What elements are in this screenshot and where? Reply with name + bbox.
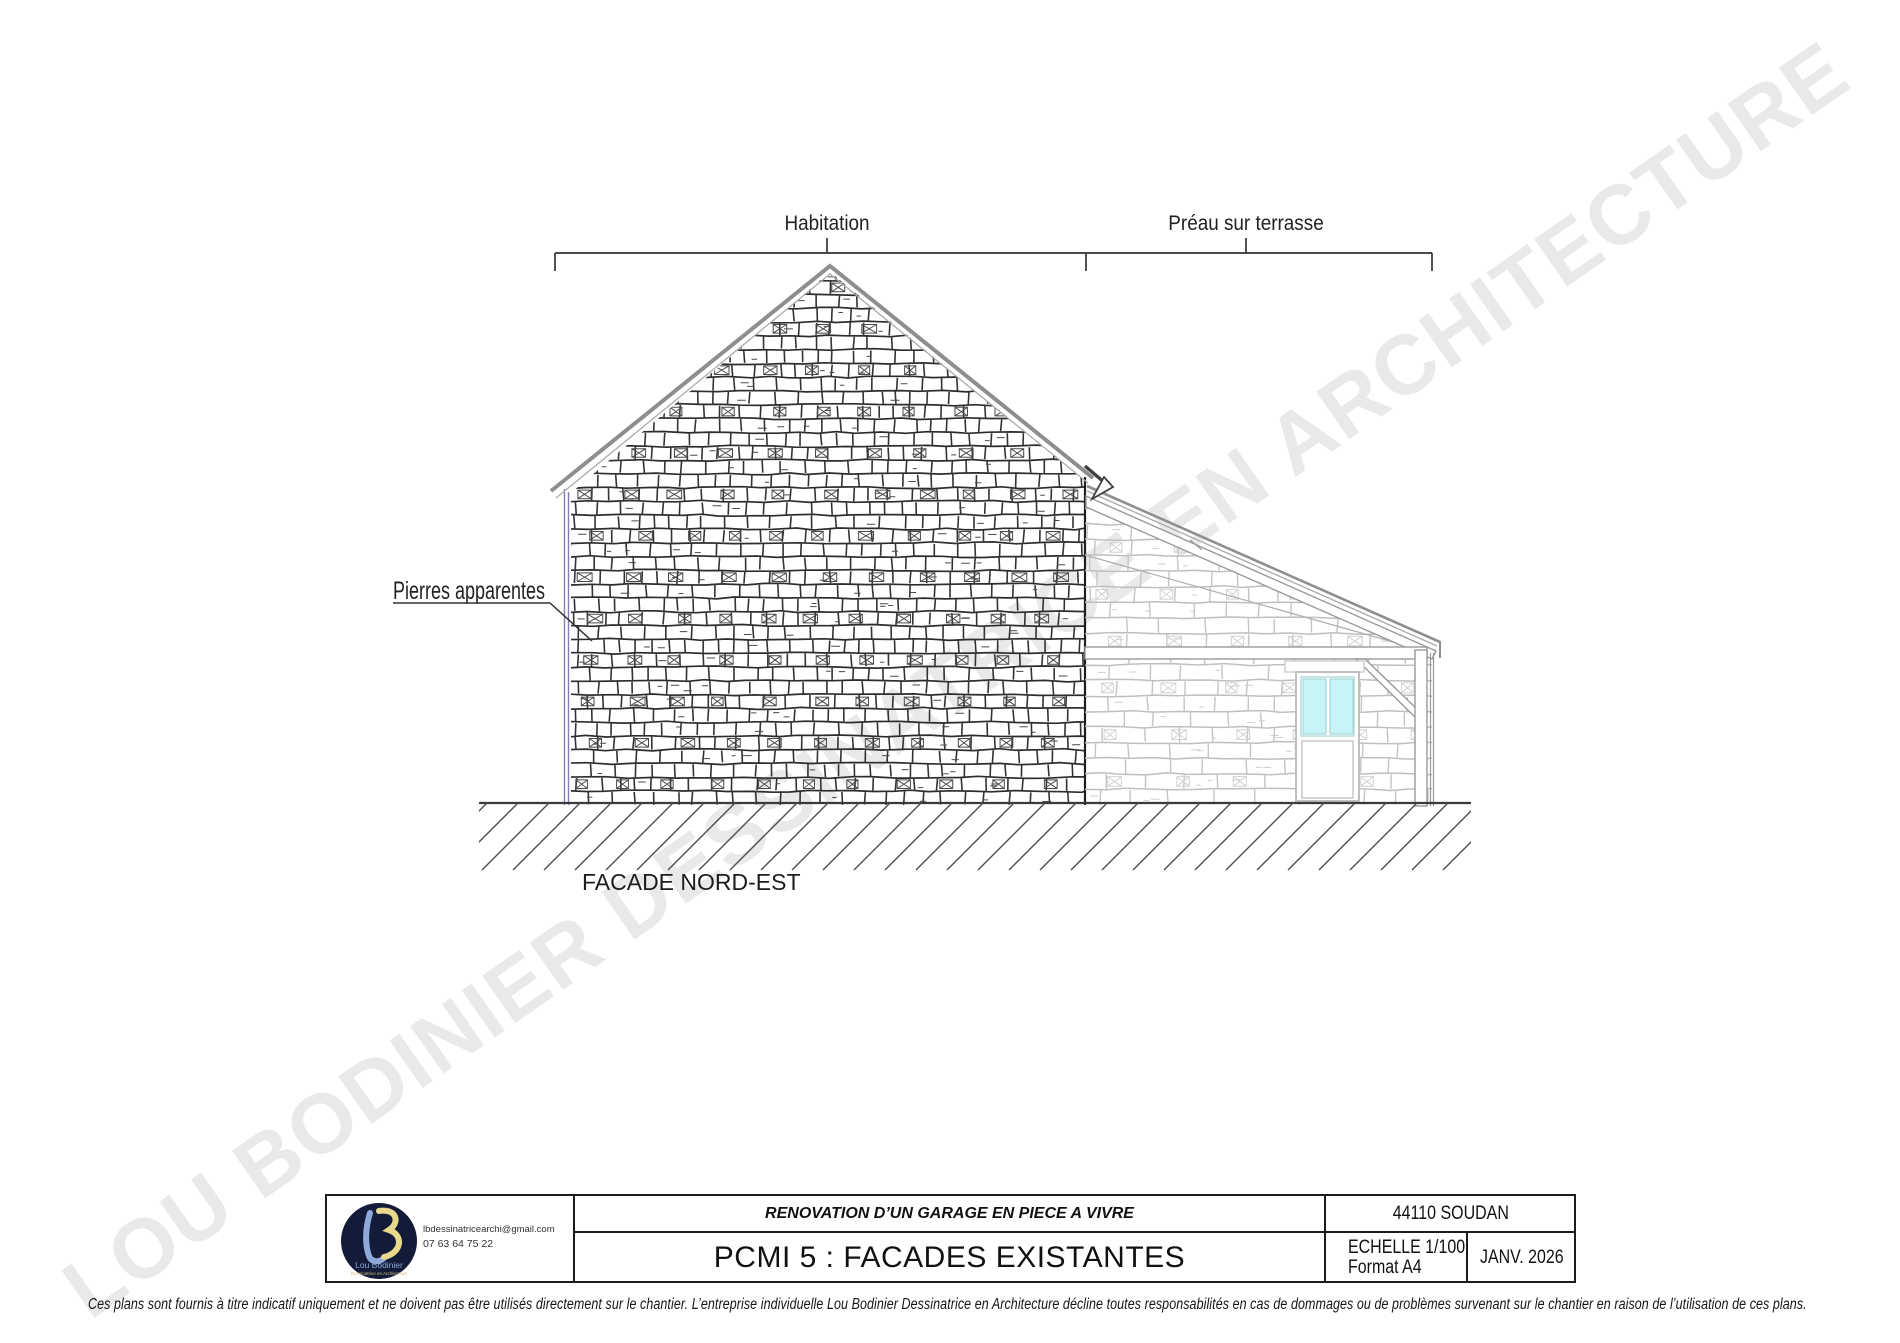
svg-text:Dessinatrice en Architecture: Dessinatrice en Architecture xyxy=(351,1271,408,1276)
svg-text:Habitation: Habitation xyxy=(784,212,869,235)
svg-text:FACADE NORD-EST: FACADE NORD-EST xyxy=(582,869,801,895)
svg-text:LOU BODINIER DESSINATRICE EN A: LOU BODINIER DESSINATRICE EN ARCHITECTUR… xyxy=(46,23,1865,1336)
svg-text:Préau sur terrasse: Préau sur terrasse xyxy=(1168,212,1323,235)
svg-text:Lou Bodinier: Lou Bodinier xyxy=(355,1260,403,1270)
svg-text:Pierres apparentes: Pierres apparentes xyxy=(393,576,545,605)
